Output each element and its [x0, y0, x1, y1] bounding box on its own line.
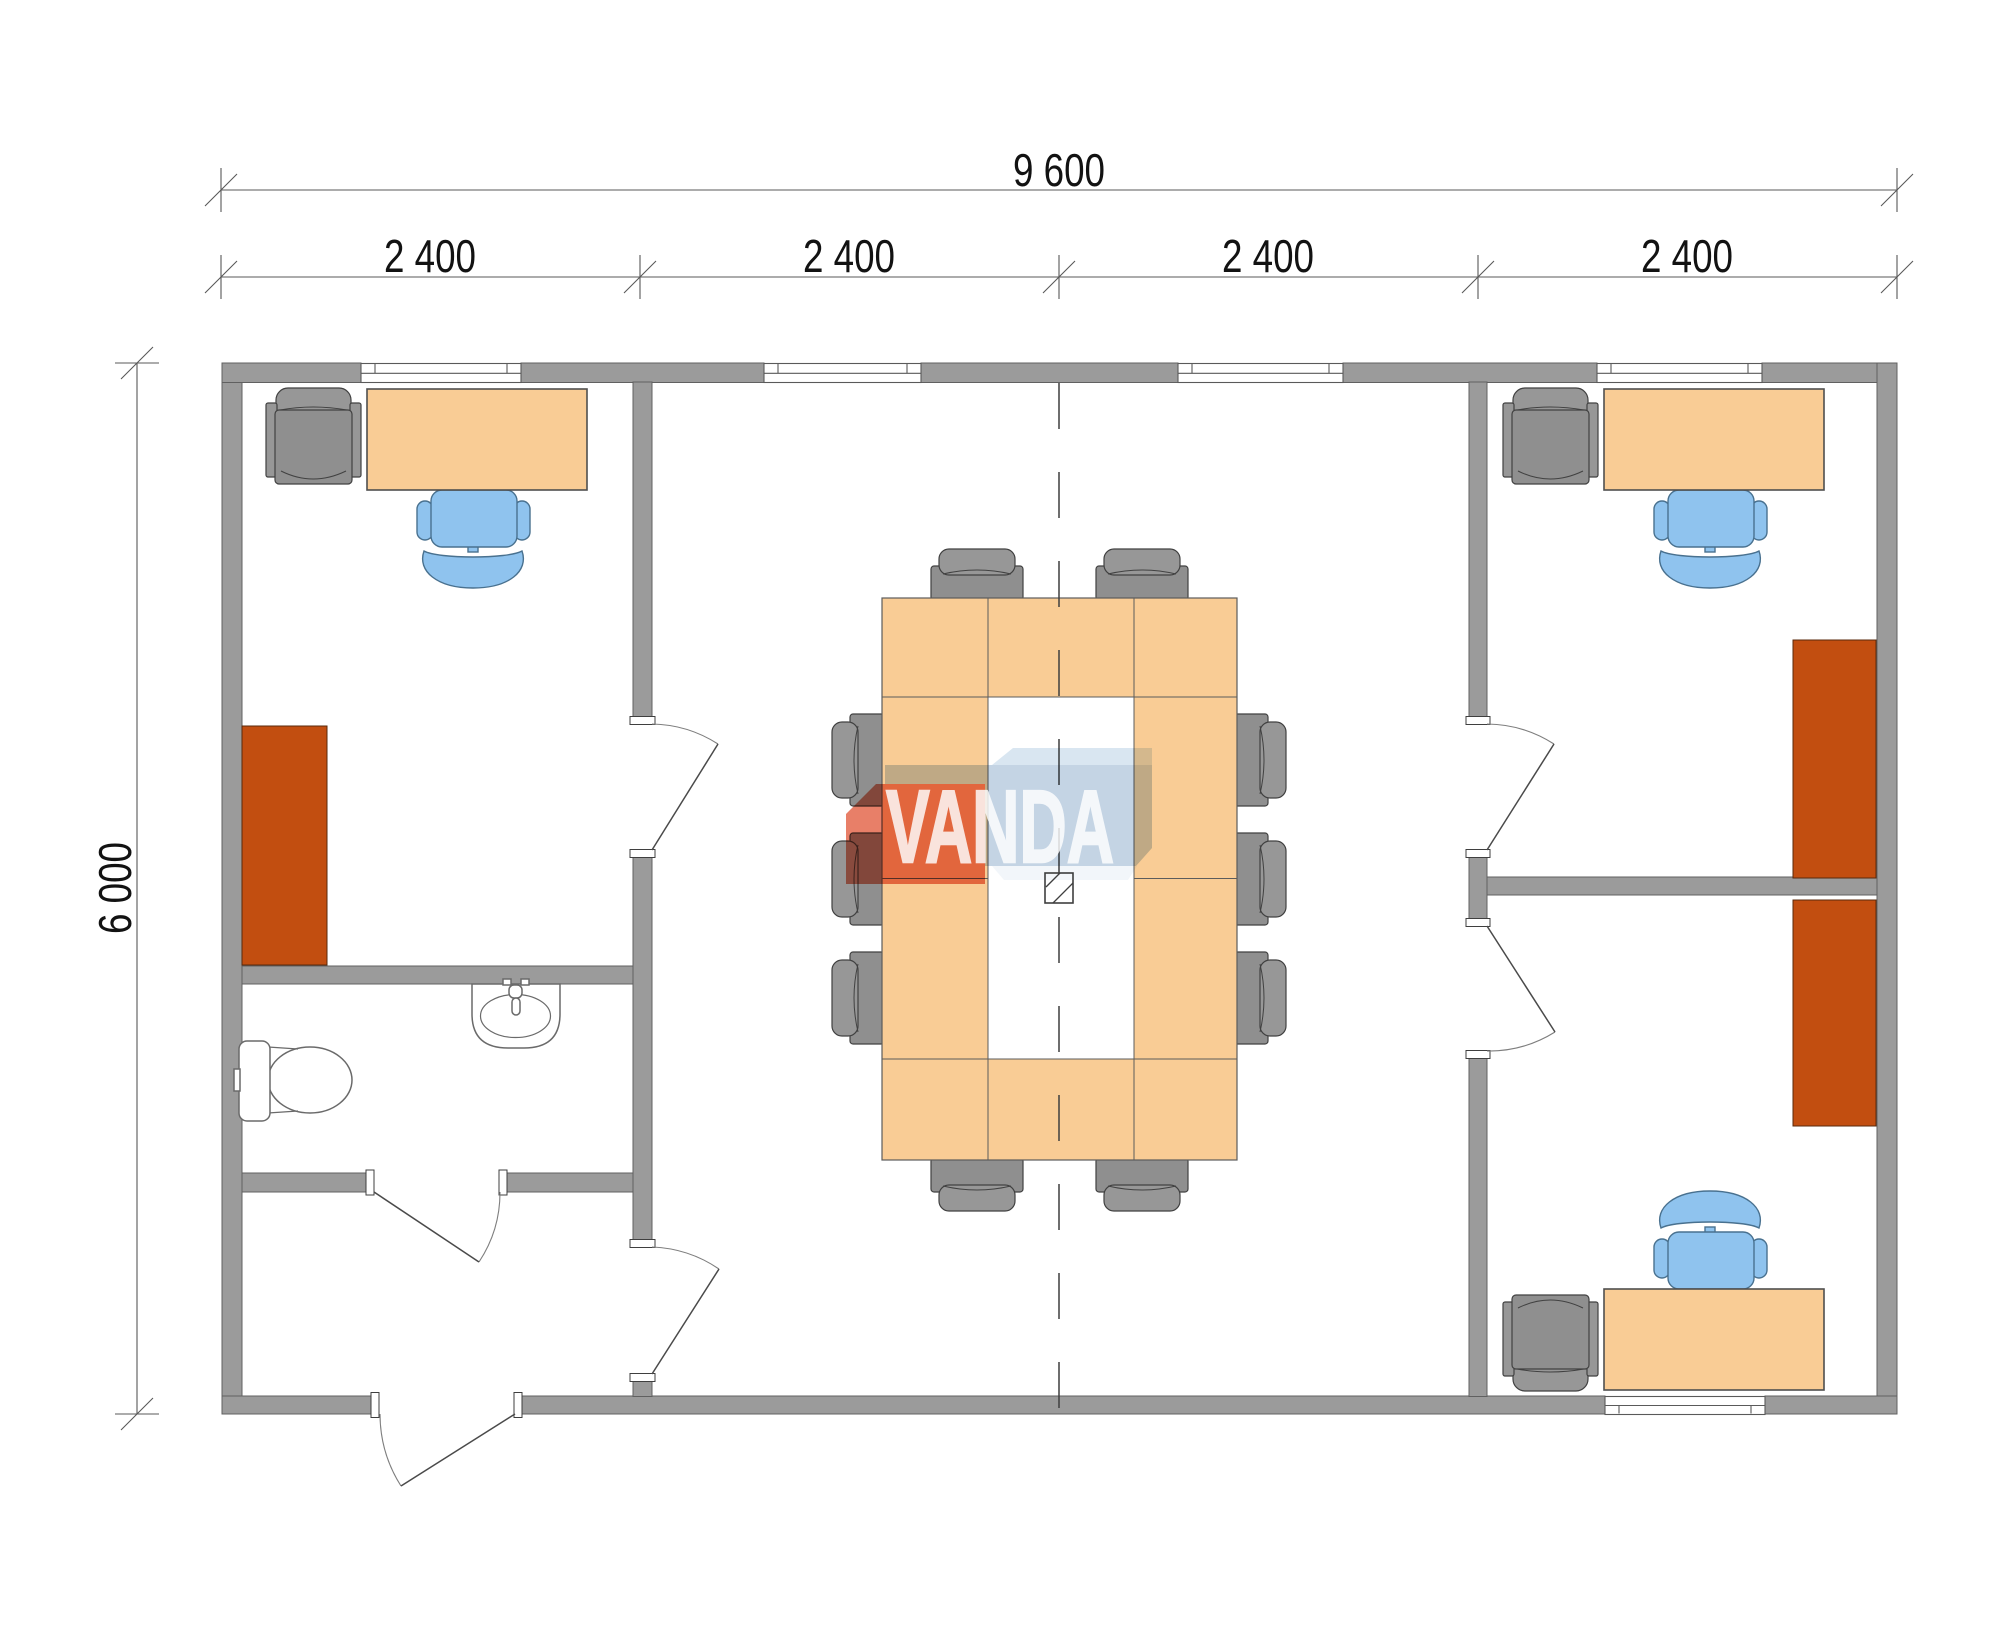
svg-text:2 400: 2 400 [1641, 230, 1733, 282]
svg-text:6 000: 6 000 [89, 842, 141, 934]
svg-text:9 600: 9 600 [1013, 144, 1105, 196]
svg-text:VANDA: VANDA [886, 769, 1114, 884]
svg-text:2 400: 2 400 [384, 230, 476, 282]
svg-text:2 400: 2 400 [803, 230, 895, 282]
svg-text:2 400: 2 400 [1222, 230, 1314, 282]
